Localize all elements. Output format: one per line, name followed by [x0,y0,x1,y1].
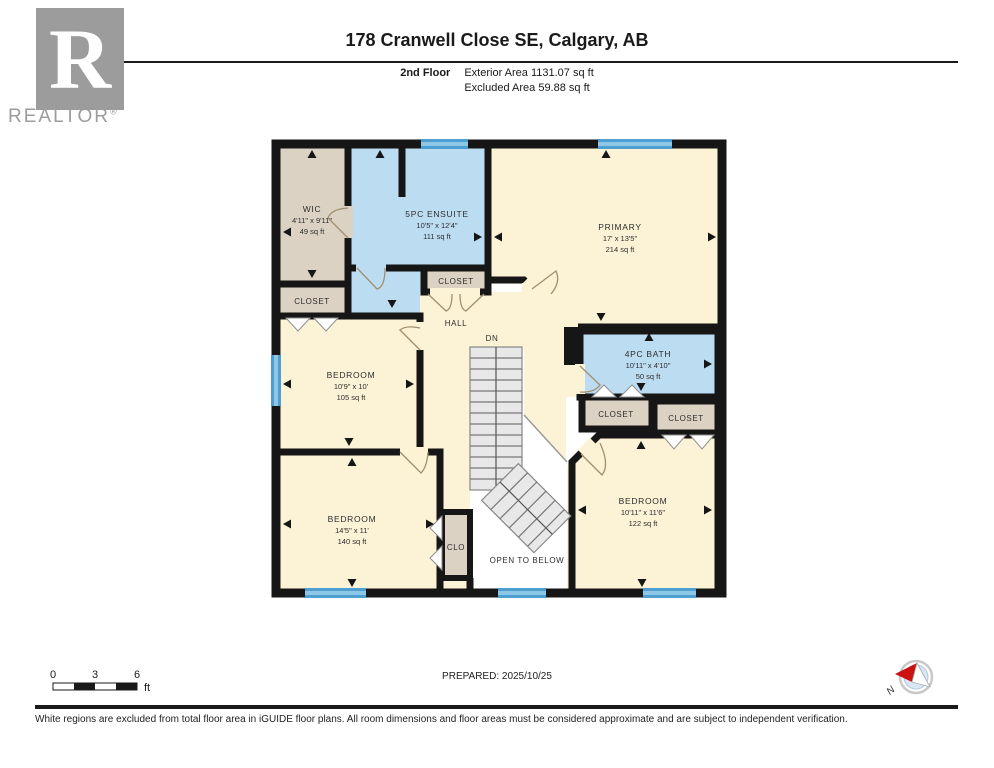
svg-text:10'5" x 12'4": 10'5" x 12'4" [416,221,457,230]
prepared-date: PREPARED: 2025/10/25 [0,671,994,682]
svg-text:140 sq ft: 140 sq ft [338,537,368,546]
open-to-below-label: OPEN TO BELOW [490,556,565,565]
dn-label: DN [486,334,499,343]
closet-wic-label: CLOSET [294,297,330,306]
svg-text:49 sq ft: 49 sq ft [300,227,326,236]
footer-rule [35,705,958,709]
ensuite-label: 5PC ENSUITE [405,209,468,219]
floor-plan-svg: WIC 4'11" x 9'11" 49 sq ft 5PC ENSUITE 1… [0,0,994,768]
closet-bath-left-label: CLOSET [598,410,634,419]
primary-label: PRIMARY [598,222,641,232]
hall-label: HALL [445,319,467,328]
bath-label: 4PC BATH [625,349,672,359]
svg-text:4'11" x 9'11": 4'11" x 9'11" [292,216,332,225]
scale-unit: ft [144,682,150,694]
floor-plan-page: R REALTOR® 178 Cranwell Close SE, Calgar… [0,0,994,768]
disclaimer-text: White regions are excluded from total fl… [35,714,964,725]
clo-label: CLO [447,543,465,552]
svg-text:14'5" x 11': 14'5" x 11' [335,526,369,535]
svg-text:214 sq ft: 214 sq ft [606,245,636,254]
compass-n: N [885,684,898,698]
bedroom-mid-left-label: BEDROOM [327,370,376,380]
svg-text:17' x 13'5": 17' x 13'5" [603,234,638,243]
svg-text:10'11" x 4'10": 10'11" x 4'10" [626,361,671,370]
svg-text:105 sq ft: 105 sq ft [337,393,367,402]
bedroom-bottom-right-label: BEDROOM [619,496,668,506]
wic-label: WIC [303,204,322,214]
room-wic [276,144,348,284]
svg-text:122 sq ft: 122 sq ft [629,519,659,528]
svg-text:10'9" x 10': 10'9" x 10' [334,382,369,391]
svg-text:111 sq ft: 111 sq ft [423,232,452,241]
svg-text:10'11" x 11'6": 10'11" x 11'6" [621,508,666,517]
svg-text:50 sq ft: 50 sq ft [636,372,662,381]
closet-bath-right-label: CLOSET [668,414,704,423]
closet-hall-label: CLOSET [438,277,474,286]
bedroom-bottom-left-label: BEDROOM [328,514,377,524]
